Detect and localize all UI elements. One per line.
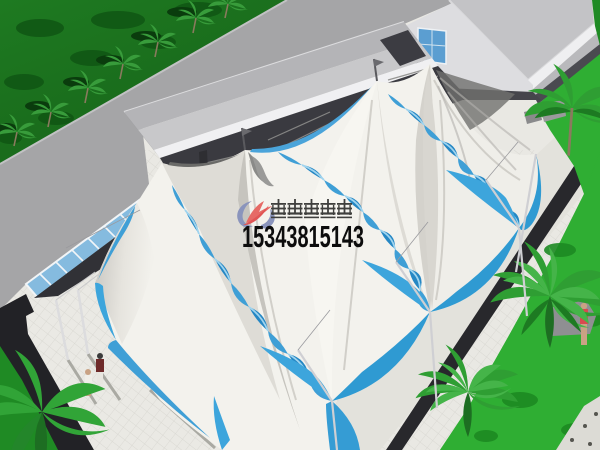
- svg-text:15343815143: 15343815143: [242, 219, 364, 254]
